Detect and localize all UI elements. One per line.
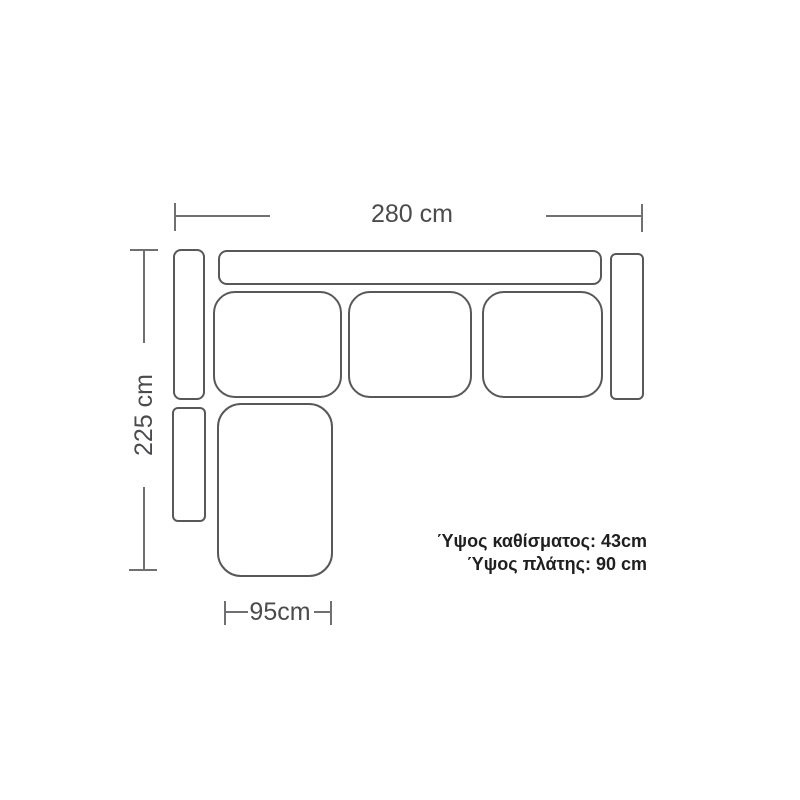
dimension-width-tick-left [174,203,176,231]
sofa-seat-cushion-1 [213,291,342,398]
sofa-chaise-seat [217,403,333,577]
sofa-seat-cushion-3 [482,291,603,398]
note-back-height: Ύψος πλάτης: 90 cm [437,553,647,576]
sofa-left-armrest-upper [173,249,205,400]
dimension-width-label: 280 cm [342,200,482,228]
dimension-depth-label: 225 cm [131,345,157,485]
sofa-left-armrest-lower [172,407,206,522]
dimension-width-tick-right [641,204,643,232]
dimension-depth-line-top [143,251,145,343]
dimension-depth-line-bottom [143,487,145,570]
sofa-backrest [218,250,602,285]
dimension-width-line-left [176,215,270,217]
note-seat-height: Ύψος καθίσματος: 43cm [437,530,647,553]
height-notes: Ύψος καθίσματος: 43cm Ύψος πλάτης: 90 cm [437,530,647,576]
dimension-chaise-line-right [314,611,331,613]
dimension-width-line-right [546,215,641,217]
dimension-chaise-tick-right [330,601,332,625]
dimension-chaise-tick-left [224,601,226,625]
sofa-right-armrest [610,253,644,400]
sofa-seat-cushion-2 [348,291,472,398]
dimension-depth-tick-bottom [129,569,157,571]
sofa-dimension-diagram: 280 cm 225 cm 95cm Ύψος καθίσματος: 43cm… [0,0,800,800]
dimension-chaise-label: 95cm [240,598,320,626]
